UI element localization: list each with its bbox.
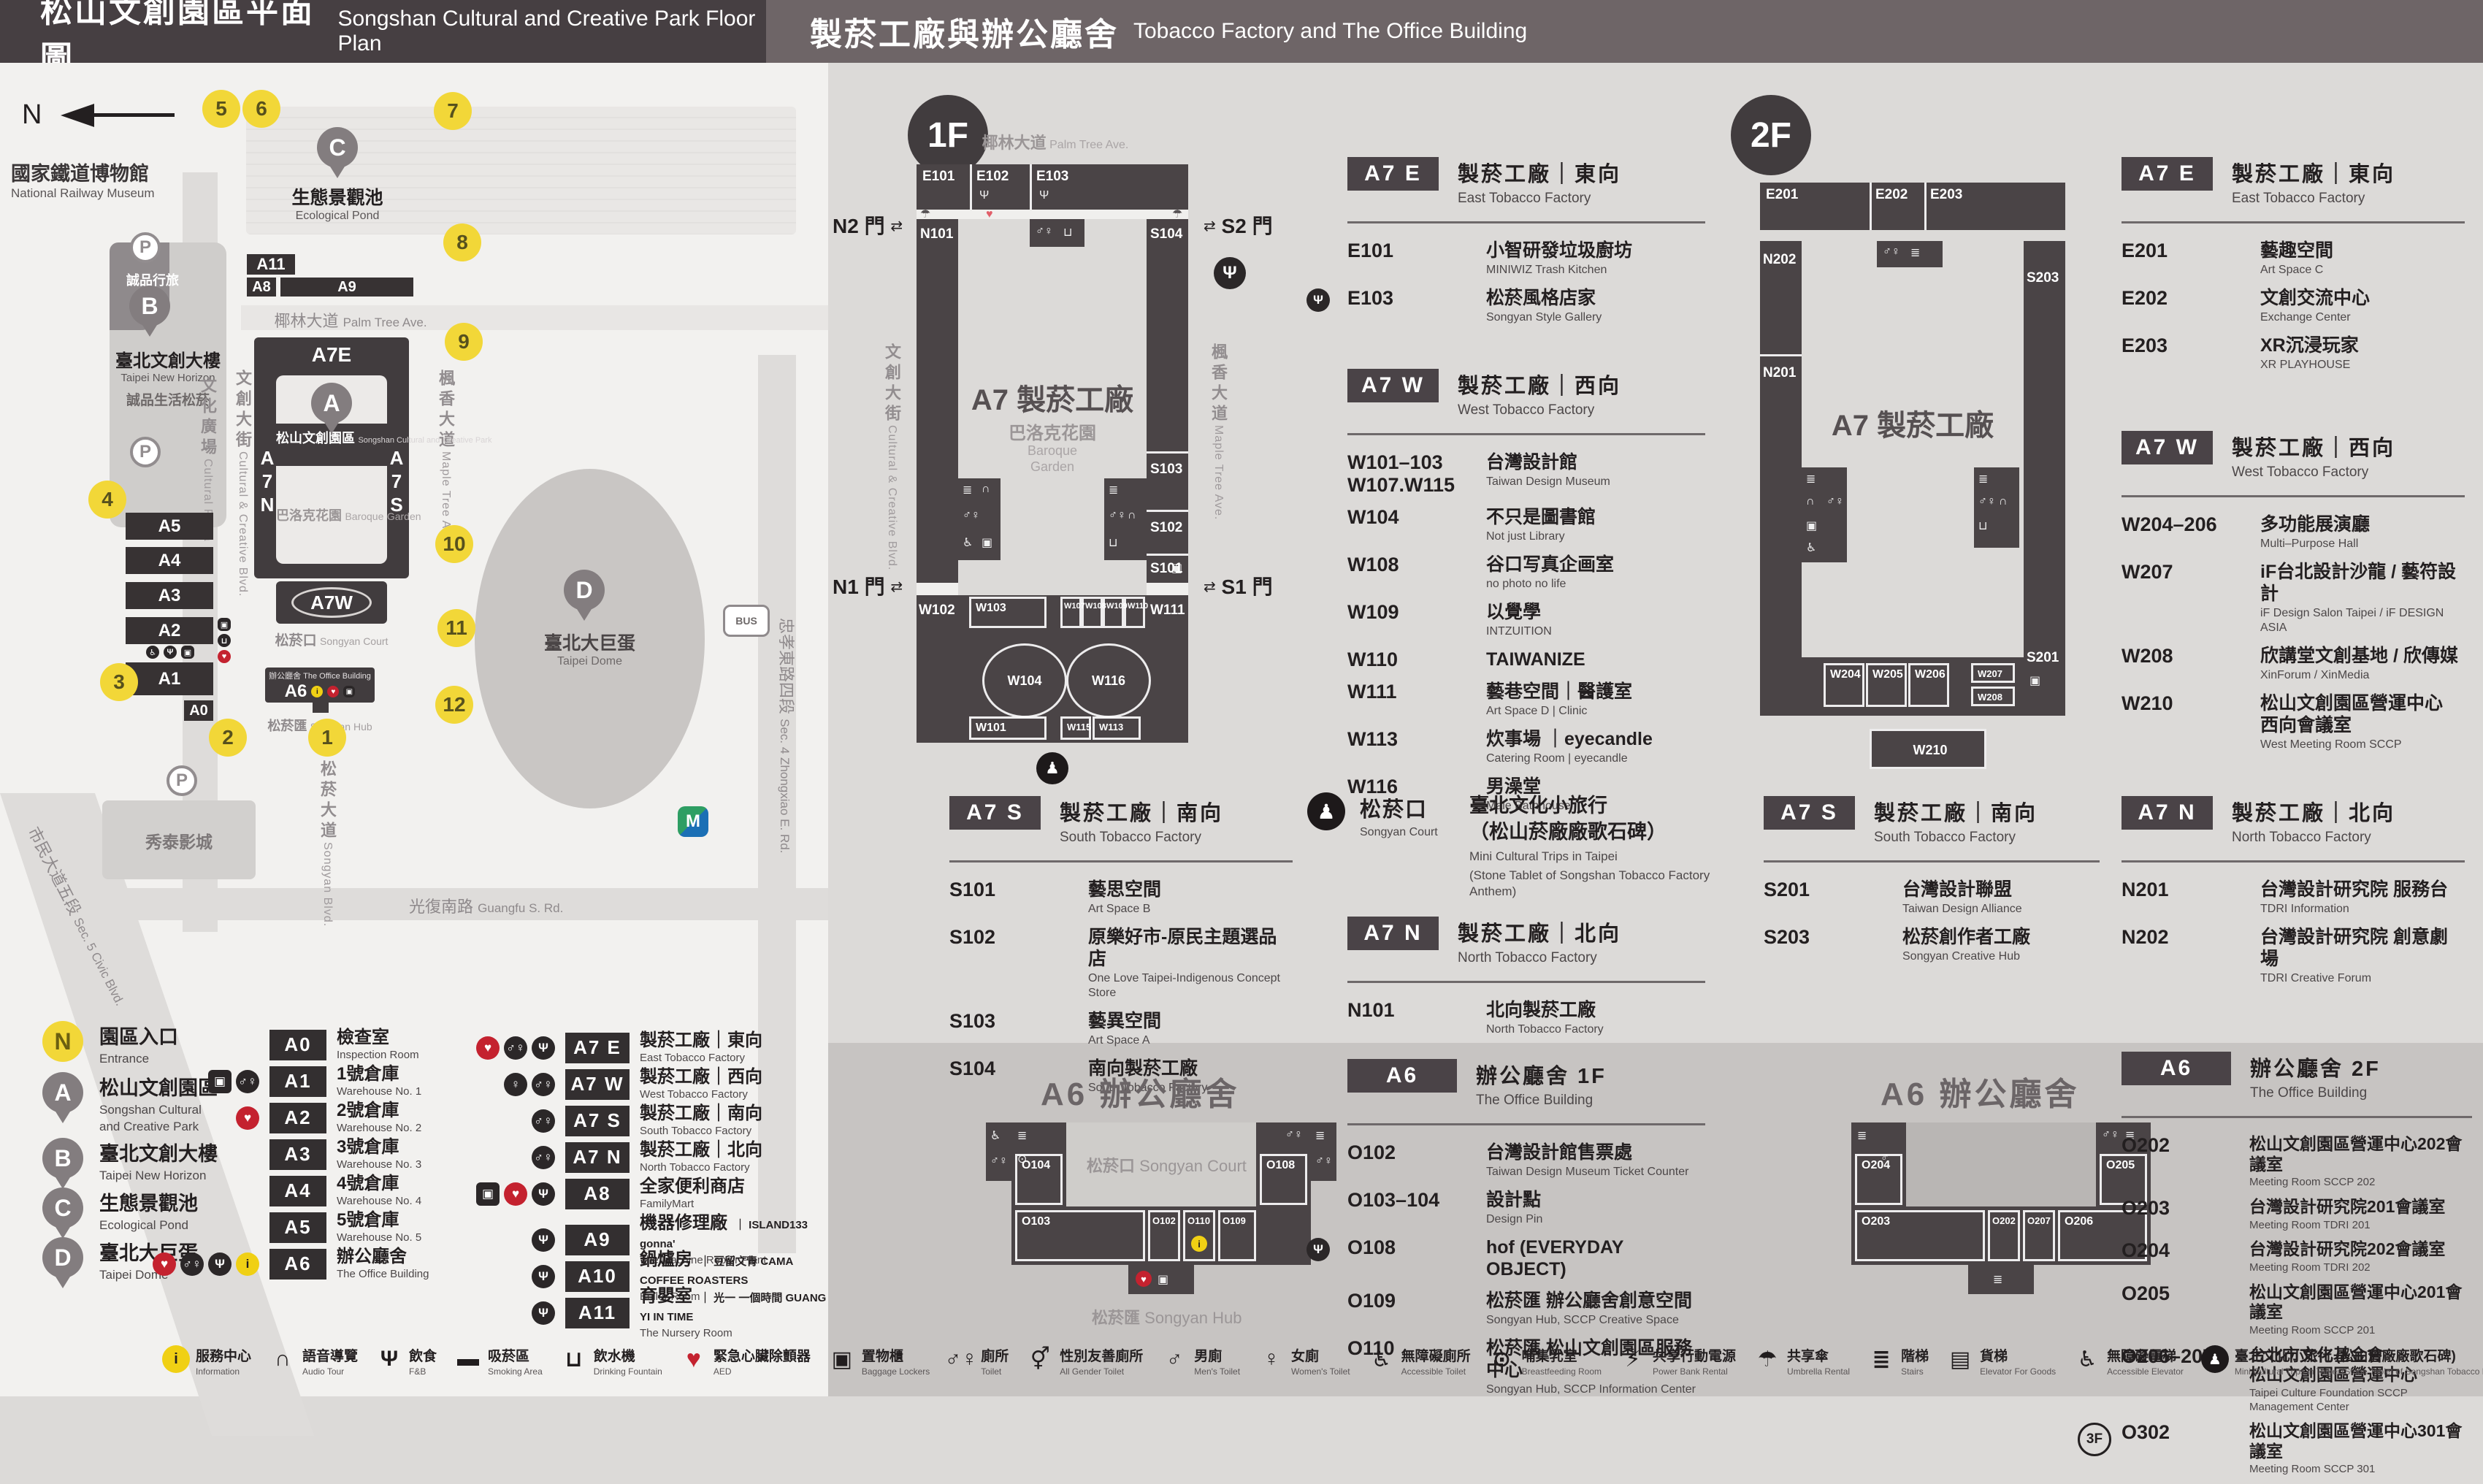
fnb-icon: Ψ bbox=[1306, 1238, 1330, 1261]
entrance-number: 8 bbox=[443, 223, 481, 261]
legend-row-icons: ♥♂♀Ψ bbox=[460, 1036, 555, 1060]
amenity-item: ▤ 貨梯 Elevator For Goods bbox=[1946, 1345, 2056, 1377]
room-w103: W103 bbox=[969, 597, 1047, 628]
room-w115: W115 bbox=[1060, 716, 1091, 740]
legend-row-icons: ▣♂♀ bbox=[157, 1070, 259, 1093]
section-a7s-2f: A7 S 製菸工廠｜南向South Tobacco Factory S201 台… bbox=[1764, 796, 2100, 974]
plan2-amenity-cluster-right: ≣ ♂♀ ∩ ⊔ bbox=[1974, 467, 2019, 548]
palm-ave-label: 椰林大道 Palm Tree Ave. bbox=[241, 308, 460, 332]
room-list-item: W210 松山文創園區營運中心西向會議室West Meeting Room SC… bbox=[2122, 692, 2465, 752]
legend-row-icons: ♥ bbox=[157, 1106, 259, 1130]
room-w110: W110 bbox=[1124, 597, 1145, 628]
legend-zh: 3號倉庫 bbox=[337, 1138, 421, 1157]
allgender-icon: ⚥ bbox=[1026, 1345, 1054, 1373]
toilet-icon: ♂♀ bbox=[532, 1109, 555, 1133]
room-list-item: O202 松山文創園區營運中心202會議室Meeting Room SCCP 2… bbox=[2122, 1134, 2472, 1190]
room-list-item: Ψ E103 松菸風格店家Songyan Style Gallery bbox=[1347, 287, 1705, 325]
room-o207: O207 bbox=[2023, 1210, 2055, 1261]
legend-box: A4 bbox=[269, 1176, 326, 1206]
amenity-en: Stairs bbox=[1901, 1366, 1929, 1377]
legend-box: A1 bbox=[269, 1066, 326, 1097]
amenity-zh: 共享傘 bbox=[1787, 1345, 1850, 1365]
court-label-zh: 松菸口 bbox=[1360, 792, 1455, 823]
building-a2: A2 bbox=[126, 617, 213, 644]
section-a7n-1f: A7 N 製菸工廠｜北向North Tobacco Factory N101 北… bbox=[1347, 917, 1705, 1047]
fnb-icon: Ψ bbox=[532, 1182, 555, 1206]
room-o108: O108 bbox=[1260, 1154, 1307, 1205]
room-list-item: E202 文創交流中心Exchange Center bbox=[2122, 287, 2465, 325]
legend-en: The Nursery Room bbox=[640, 1327, 828, 1339]
amenity-zh: 語音導覽 bbox=[302, 1345, 358, 1365]
a6-floor1-plan: A6 辦公廳舍 ♿ ♂♀ ≣ ♂♀ ≣ ⊙ ♂♀ 松菸口 Songyan Cou… bbox=[971, 1068, 1351, 1331]
railway-museum-label: 國家鐵道博物館 National Railway Museum bbox=[11, 158, 155, 201]
floor2-badge: 2F bbox=[1731, 95, 1811, 175]
powerbank-icon: ⚡ bbox=[1619, 1345, 1647, 1373]
locker-icon: ▣ bbox=[1806, 519, 1817, 533]
amenity-zh: 吸菸區 bbox=[488, 1345, 543, 1365]
amenity-item: Ψ 飲食 F&B bbox=[375, 1345, 437, 1377]
amenity-en: Breastfeeding Room bbox=[1522, 1366, 1602, 1377]
entrance-number: 7 bbox=[434, 92, 472, 130]
amenity-en: AED bbox=[713, 1366, 811, 1377]
locker-icon: ▣ bbox=[208, 1070, 232, 1093]
a6-office-label: 辦公廳舍 The Office Building bbox=[265, 670, 375, 681]
legend-zh: 鍋爐房｜ 豆留文青 CAMA COFFEE ROASTERS bbox=[640, 1250, 828, 1289]
legend-en: Warehouse No. 2 bbox=[337, 1122, 421, 1134]
aed-icon: ♥ bbox=[218, 650, 231, 663]
amenity-en: Smoking Area bbox=[488, 1366, 543, 1377]
audio-icon: ∩ bbox=[1806, 495, 1815, 508]
floor1-plan: E101 E102 Ψ E103 Ψ ♥ ☂ ☂ N101 W102 S104 … bbox=[917, 164, 1188, 757]
showtimes-label: 秀泰影城 bbox=[102, 828, 256, 853]
legend-box: A7 N bbox=[565, 1142, 630, 1173]
compass-arrow-icon bbox=[49, 104, 94, 127]
amenity-item: ♟ 臺北文化小旅行 (松山菸廠廠歌石碑) Mini Cultural Trips… bbox=[2201, 1345, 2483, 1377]
aed-icon: ♥ bbox=[986, 208, 993, 221]
legend-row: ♥ A2 2號倉庫 Warehouse No. 2 bbox=[157, 1101, 421, 1134]
locker-icon: ▣ bbox=[181, 646, 194, 659]
toilet-icon: ♂♀ bbox=[1883, 245, 1900, 259]
room-n201: N201 bbox=[1763, 365, 1796, 381]
amenity-en: Baggage Lockers bbox=[862, 1366, 930, 1377]
building-a1: A1 bbox=[126, 662, 213, 695]
room-w107: W107 bbox=[1060, 597, 1082, 628]
new-horizon-label: 臺北文創大樓 Taipei New Horizon bbox=[88, 346, 248, 384]
aed-icon: ♥ bbox=[504, 1182, 527, 1206]
court-title-en1: Mini Cultural Trips in Taipei bbox=[1469, 849, 1716, 865]
section-a7w-1f: A7 W 製菸工廠｜西向West Tobacco Factory W101–10… bbox=[1347, 369, 1705, 823]
amenity-en: Umbrella Rental bbox=[1787, 1366, 1850, 1377]
room-w205: W205 bbox=[1866, 663, 1907, 707]
mens-icon: ♂ bbox=[1160, 1345, 1188, 1373]
room-o103: O103 bbox=[1015, 1210, 1145, 1261]
breastfeeding-icon: ⊙ bbox=[1488, 1345, 1516, 1373]
amenity-item: ♀ 女廁 Women's Toilet bbox=[1258, 1345, 1350, 1377]
legend-zh: 製菸工廠｜北向 bbox=[640, 1141, 762, 1160]
section-badge: A6 bbox=[2122, 1052, 2231, 1085]
parking-icon: P bbox=[167, 765, 197, 796]
building-a3: A3 bbox=[126, 582, 213, 609]
header-left: 松山文創園區平面圖 Songshan Cultural and Creative… bbox=[0, 0, 766, 63]
room-w113: W113 bbox=[1093, 716, 1141, 740]
eslite-spectrum-label: 誠品生活松菸 bbox=[88, 389, 248, 409]
fnb-icon: Ψ bbox=[208, 1252, 232, 1276]
amenity-en: Toilet bbox=[981, 1366, 1009, 1377]
legend-box: A6 bbox=[269, 1249, 326, 1280]
legend-row: ♂♀ A7 S 製菸工廠｜南向 South Tobacco Factory bbox=[460, 1104, 762, 1137]
songyan-blvd-label: 松菸大道Songyan Blvd. bbox=[315, 760, 339, 927]
parking-icon: P bbox=[130, 437, 161, 467]
stairs-icon: ≣ bbox=[1806, 472, 1816, 486]
accessible-icon: ♿ bbox=[1368, 1345, 1396, 1373]
amenity-en: F&B bbox=[409, 1366, 437, 1377]
aed-icon: ♥ bbox=[1136, 1271, 1152, 1287]
showtimes-building: 秀泰影城 bbox=[102, 800, 256, 879]
maple-ave-label: 楓香大道Maple Tree Ave. bbox=[434, 370, 457, 546]
pond-label: 生態景觀池 Ecological Pond bbox=[246, 183, 429, 223]
room-list-item: S101 藝思空間Art Space B bbox=[949, 879, 1293, 917]
building-a9: A9 bbox=[280, 278, 413, 297]
room-list-item: O109 松菸匯 辦公廳舍創意空間Songyan Hub, SCCP Creat… bbox=[1347, 1290, 1705, 1328]
entrance-number: 10 bbox=[435, 525, 473, 563]
amenity-en: Mini Cultural Trips in Taipei (Stone Tab… bbox=[2235, 1366, 2483, 1377]
section-badge: A7 S bbox=[949, 796, 1041, 830]
legend-pin-icon: A bbox=[42, 1072, 83, 1113]
legend-box: A0 bbox=[269, 1030, 326, 1060]
amenity-zh: 飲食 bbox=[409, 1345, 437, 1365]
section-badge: A7 N bbox=[1347, 917, 1439, 950]
legend-row: ♂♀ A7 N 製菸工廠｜北向 North Tobacco Factory bbox=[460, 1141, 762, 1174]
building-a5: A5 bbox=[126, 513, 213, 540]
room-w210: W210 bbox=[1870, 729, 1986, 769]
plan1-ccblvd-label: 文創大街Cultural & Creative Blvd. bbox=[880, 343, 903, 570]
entrance-number: 11 bbox=[437, 609, 475, 647]
room-w104: W104 bbox=[982, 643, 1067, 718]
legend-row: A3 3號倉庫 Warehouse No. 3 bbox=[157, 1138, 421, 1171]
legend-box: A8 bbox=[565, 1179, 630, 1209]
locker-icon: ▣ bbox=[982, 535, 992, 550]
fnb-icon: Ψ bbox=[1039, 189, 1049, 202]
songyan-court-map-label: 松菸口 Songyan Court bbox=[254, 630, 409, 649]
section-badge: A7 S bbox=[1764, 796, 1855, 830]
room-list-item: 3F O302 松山文創園區營運中心301會議室Meeting Room SCC… bbox=[2122, 1421, 2472, 1477]
info-icon: i bbox=[311, 686, 323, 697]
pin-c: C bbox=[317, 127, 358, 168]
amenity-en: Women's Toilet bbox=[1291, 1366, 1350, 1377]
room-w206: W206 bbox=[1908, 663, 1949, 707]
room-o102: O102 bbox=[1148, 1210, 1180, 1261]
plan2-left-wing: N202 N201 bbox=[1760, 241, 1802, 716]
room-list-item: W208 欣講堂文創基地 / 欣傳媒XinForum / XinMedia bbox=[2122, 645, 2465, 683]
dome-label: 臺北大巨蛋 Taipei Dome bbox=[475, 629, 705, 668]
room-list-item: W204–206 多功能展演廳Multi–Purpose Hall bbox=[2122, 513, 2465, 551]
audio-icon: ∩ bbox=[269, 1345, 296, 1373]
toilet-icon: ♂♀ bbox=[1109, 509, 1126, 522]
aed-icon: ♥ bbox=[153, 1252, 176, 1276]
plan1-baroque-en2: Garden bbox=[917, 459, 1188, 475]
amenity-zh: 貨梯 bbox=[1980, 1345, 2056, 1365]
room-w208: W208 bbox=[1971, 686, 2015, 706]
entrance-number: 4 bbox=[88, 481, 126, 519]
fnb-icon: Ψ bbox=[375, 1345, 403, 1373]
accessible-icon: ♿ bbox=[1806, 540, 1816, 555]
plan1-north-connector: ♂♀ ⊔ bbox=[1030, 219, 1084, 247]
room-w109: W109 bbox=[1103, 597, 1124, 628]
legend-box: A7 S bbox=[565, 1106, 630, 1136]
room-list-item: W101–103W107.W115 台灣設計館Taiwan Design Mus… bbox=[1347, 451, 1705, 497]
amenity-en: Elevator For Goods bbox=[1980, 1366, 2056, 1377]
legend-en: West Tobacco Factory bbox=[640, 1088, 762, 1101]
stairs-icon: ≣ bbox=[1993, 1272, 2002, 1287]
amenity-item: ⊙ 哺集乳室 Breastfeeding Room bbox=[1488, 1345, 1602, 1377]
nursing-icon: ♀ bbox=[504, 1073, 527, 1096]
fountain-icon: ⊔ bbox=[1063, 225, 1072, 240]
amenity-item: ∩ 語音導覽 Audio Tour bbox=[269, 1345, 358, 1377]
plan1-baroque-zh: 巴洛克花園 bbox=[917, 418, 1188, 444]
pin-b: B bbox=[129, 286, 170, 326]
toilet-icon: ♂♀ bbox=[180, 1252, 204, 1276]
room-o110: O110 i bbox=[1183, 1210, 1215, 1261]
court-icon: ♟ bbox=[2201, 1345, 2229, 1373]
plan1-palm-label: 椰林大道 Palm Tree Ave. bbox=[942, 130, 1168, 153]
accesselev-icon: ♿ bbox=[2073, 1345, 2101, 1373]
section-badge: A6 bbox=[1347, 1059, 1457, 1093]
legend-en: Warehouse No. 1 bbox=[337, 1085, 421, 1098]
a7e-map-label: A7E bbox=[254, 343, 409, 367]
room-list-item: W108 谷口写真企画室no photo no life bbox=[1347, 554, 1705, 592]
room-o104: O104 bbox=[1015, 1154, 1063, 1205]
plan2-right-wing: S203 S201 ▣ bbox=[2024, 241, 2065, 716]
room-w111: W111 bbox=[1150, 603, 1185, 619]
amenity-zh: 服務中心 bbox=[196, 1345, 251, 1365]
info-icon: i bbox=[162, 1345, 190, 1373]
baroque-garden-label: 巴洛克花園 Baroque Garden bbox=[276, 505, 387, 524]
room-list-item: S201 台灣設計聯盟Taiwan Design Alliance bbox=[1764, 879, 2100, 917]
legend-zh: 製菸工廠｜西向 bbox=[640, 1068, 762, 1087]
amenity-zh: 緊急心臟除顫器 bbox=[713, 1345, 811, 1365]
stairs-icon: ≣ bbox=[1857, 1128, 1867, 1143]
court-title-en2: (Stone Tablet of Songshan Tobacco Factor… bbox=[1469, 868, 1716, 900]
room-s201: S201 bbox=[2027, 650, 2059, 666]
building-a6-map: 辦公廳舍 The Office Building A6 i ♥ ▣ bbox=[265, 668, 375, 703]
a2-side-icons: ▣ ⊔ ♥ bbox=[218, 618, 231, 663]
room-list-item: O205 松山文創園區營運中心201會議室Meeting Room SCCP 2… bbox=[2122, 1282, 2472, 1338]
gate-n1: N1 門 ⇄ bbox=[833, 571, 903, 600]
legend-row: A5 5號倉庫 Warehouse No. 5 bbox=[157, 1211, 421, 1244]
legend-zh: 機器修理廠｜ ISLAND133 gonna' bbox=[640, 1214, 828, 1252]
room-list-item: S102 原樂好市-原民主題選品店One Love Taipei-Indigen… bbox=[949, 926, 1293, 1001]
park-map-panel: N 市民大道五段 Sec. 5 Civic Blvd. 菸廠路 Yanchang… bbox=[0, 63, 828, 1396]
locker-icon: ▣ bbox=[1171, 561, 1182, 575]
amenity-zh: 女廁 bbox=[1291, 1345, 1350, 1365]
amenity-en: Audio Tour bbox=[302, 1366, 358, 1377]
section-a7n-2f: A7 N 製菸工廠｜北向North Tobacco Factory N201 台… bbox=[2122, 796, 2465, 995]
room-e201: E201 bbox=[1766, 187, 1798, 203]
room-s203: S203 bbox=[2027, 270, 2059, 286]
room-e203: E203 bbox=[1930, 187, 1962, 203]
legend-row: A0 檢查室 Inspection Room bbox=[157, 1028, 419, 1061]
legend-zh: 辦公廳舍 bbox=[337, 1247, 429, 1266]
locker-icon: ▣ bbox=[343, 686, 355, 697]
info-icon: i bbox=[1191, 1236, 1207, 1252]
legend-row-icons: ♀♂♀ bbox=[460, 1073, 555, 1096]
amenity-en: All Gender Toilet bbox=[1060, 1366, 1143, 1377]
amenity-zh: 性別友善廁所 bbox=[1060, 1345, 1143, 1365]
fountain-icon: ⊔ bbox=[218, 634, 231, 647]
a6-map-label: A6 bbox=[285, 681, 307, 702]
room-e103: E103 bbox=[1036, 169, 1068, 185]
amenity-zh: 置物櫃 bbox=[862, 1345, 930, 1365]
section-title-en: Tobacco Factory and The Office Building bbox=[1133, 19, 1527, 44]
section-a7e-1f: A7 E 製菸工廠｜東向East Tobacco Factory E101 小智… bbox=[1347, 157, 1705, 334]
room-list-item: Ψ O108 hof (EVERYDAY OBJECT) bbox=[1347, 1236, 1705, 1280]
amenity-item: ≣ 階梯 Stairs bbox=[1867, 1345, 1929, 1377]
page-title-en: Songshan Cultural and Creative Park Floo… bbox=[337, 7, 766, 56]
toilet-icon: ♂♀ bbox=[990, 1155, 1008, 1168]
bus-stop-icon: BUS bbox=[723, 605, 770, 637]
legend-en: Warehouse No. 5 bbox=[337, 1231, 421, 1244]
legend-en: Warehouse No. 4 bbox=[337, 1195, 421, 1207]
amenity-item: ⚡ 共享行動電源 Power Bank Rental bbox=[1619, 1345, 1736, 1377]
songyan-court-icon: ♟ bbox=[1036, 752, 1068, 784]
legend-zh: 1號倉庫 bbox=[337, 1065, 421, 1084]
building-a11: A11 bbox=[247, 254, 295, 275]
legend-row-icons: ♂♀ bbox=[460, 1146, 555, 1169]
room-n101: N101 bbox=[920, 226, 953, 242]
amenity-zh: 飲水機 bbox=[594, 1345, 662, 1365]
amenity-zh: 臺北文化小旅行 (松山菸廠廠歌石碑) bbox=[2235, 1345, 2483, 1365]
room-list-item: W113 炊事場 ｜eyecandleCatering Room | eyeca… bbox=[1347, 728, 1705, 766]
amenity-zh: 男廁 bbox=[1194, 1345, 1240, 1365]
fnb-icon: Ψ bbox=[164, 646, 177, 659]
amenity-en: Accessible Toilet bbox=[1401, 1366, 1471, 1377]
smoking-icon: ▬ bbox=[454, 1345, 482, 1373]
legend-zh: 全家便利商店 bbox=[640, 1177, 745, 1196]
legend-zh: 5號倉庫 bbox=[337, 1211, 421, 1230]
a6-courtyard: 松菸口 Songyan Court bbox=[1066, 1122, 1256, 1206]
stairs-icon: ≣ bbox=[1315, 1128, 1325, 1143]
accessible-icon: ♿ bbox=[990, 1128, 1001, 1143]
room-list-item: N201 台灣設計研究院 服務台TDRI Information bbox=[2122, 879, 2465, 917]
amenity-item: ▬ 吸菸區 Smoking Area bbox=[454, 1345, 543, 1377]
legend-box: A11 bbox=[565, 1298, 630, 1328]
legend-row-icons: Ψ bbox=[460, 1301, 555, 1325]
plan2-amenity-cluster-left: ≣ ∩ ♂♀ ▣ ♿ bbox=[1802, 467, 1847, 562]
amenity-item: ▣ 置物櫃 Baggage Lockers bbox=[828, 1345, 930, 1377]
building-a4: A4 bbox=[126, 547, 213, 574]
plan1-amenity-cluster-left: ≣ ∩ ♂♀ ♿ ▣ bbox=[958, 478, 1001, 560]
a6-side-r: ≣ ♂♀ bbox=[1311, 1122, 1336, 1181]
plan2-north-connector: ♂♀ ≣ bbox=[1877, 241, 1943, 267]
plan1-west-wing: W103 W107 W108 W109 W110 W104 W116 W101 … bbox=[958, 595, 1147, 743]
building-a7: A7E 巴洛克花園 Baroque Garden 松山文創園區 Songshan… bbox=[254, 337, 409, 578]
aed-icon: ♥ bbox=[476, 1036, 500, 1060]
toilet-icon: ♂♀ bbox=[1978, 495, 1996, 508]
amenity-item: ♥ 緊急心臟除顫器 AED bbox=[680, 1345, 811, 1377]
room-list-item: W104 不只是圖書館Not just Library bbox=[1347, 506, 1705, 544]
amenity-en: Accessible Elevator bbox=[2107, 1366, 2184, 1377]
legend-row-icons: ▣♥Ψ bbox=[460, 1182, 555, 1206]
room-list-item: W109 以覺學INTZUITION bbox=[1347, 601, 1705, 639]
legend-row: A4 4號倉庫 Warehouse No. 4 bbox=[157, 1174, 421, 1207]
room-list-item: O203 台灣設計研究院201會議室Meeting Room TDRI 201 bbox=[2122, 1197, 2472, 1232]
legend-box: A3 bbox=[269, 1139, 326, 1170]
court-title-zh2: （松山菸廠廠歌石碑） bbox=[1469, 819, 1716, 845]
womens-icon: ♀ bbox=[1258, 1345, 1285, 1373]
goods-icon: ▤ bbox=[1946, 1345, 1974, 1373]
room-list-item: W110 TAIWANIZE bbox=[1347, 649, 1705, 671]
amenity-en: Men's Toilet bbox=[1194, 1366, 1240, 1377]
toilet-icon: ♂♀ bbox=[1285, 1128, 1303, 1141]
amenity-en: Power Bank Rental bbox=[1653, 1366, 1736, 1377]
legend-zh: 育嬰室｜ 光一 一個時間 GUANG YI IN TIME bbox=[640, 1287, 828, 1326]
section-a7w-2f: A7 W 製菸工廠｜西向West Tobacco Factory W204–20… bbox=[2122, 431, 2465, 762]
legend-zh: 製菸工廠｜南向 bbox=[640, 1104, 762, 1123]
stairs-icon: ≣ bbox=[963, 483, 972, 497]
legend-zh: 2號倉庫 bbox=[337, 1101, 421, 1120]
amenity-item: ♿ 無障礙電梯 Accessible Elevator bbox=[2073, 1345, 2184, 1377]
room-e102: E102 bbox=[976, 169, 1009, 185]
legend-en: East Tobacco Factory bbox=[640, 1052, 762, 1064]
audio-icon: ∩ bbox=[982, 483, 990, 496]
room-list-item: E201 藝趣空間Art Space C bbox=[2122, 240, 2465, 278]
plan2-center-label: A7 製菸工廠 bbox=[1760, 402, 2065, 444]
fnb-icon: Ψ bbox=[979, 189, 989, 202]
room-o203: O203 bbox=[1855, 1210, 1985, 1261]
entrance-number: 12 bbox=[435, 686, 473, 724]
a6-stem-1f: ♥ ▣ bbox=[1128, 1265, 1194, 1294]
amenity-zh: 廁所 bbox=[981, 1345, 1009, 1365]
stairs-icon: ≣ bbox=[1910, 245, 1920, 260]
room-w101: W101 bbox=[969, 716, 1047, 740]
entrance-number: 2 bbox=[209, 719, 247, 757]
a6-hub-label: 松菸匯 Songyan Hub bbox=[1092, 1305, 1241, 1328]
room-list-item: S103 藝異空間Art Space A bbox=[949, 1010, 1293, 1048]
toilet-icon: ♂♀ bbox=[504, 1036, 527, 1060]
section-a6-2f: A6 辦公廳舍 2FThe Office Building O202 松山文創園… bbox=[2122, 1052, 2472, 1484]
legend-row: ♥♂♀Ψi A6 辦公廳舍 The Office Building bbox=[157, 1247, 429, 1280]
plan1-maple-label: 楓香大道Maple Tree Ave. bbox=[1206, 343, 1230, 520]
toilet-icon: ♂♀ bbox=[1036, 225, 1053, 238]
north-label: N bbox=[22, 99, 42, 131]
metro-icon: M bbox=[678, 806, 708, 837]
toilet-icon: ♂♀ bbox=[532, 1146, 555, 1169]
legend-row-icons: Ψ bbox=[460, 1228, 555, 1252]
pin-d: D bbox=[564, 570, 605, 611]
legend-box: A7 W bbox=[565, 1069, 630, 1100]
a6-stem bbox=[313, 703, 329, 713]
locker-icon: ▣ bbox=[218, 618, 231, 631]
room-s102: S102 bbox=[1150, 520, 1182, 536]
legend-row: Ψ A11 育嬰室｜ 光一 一個時間 GUANG YI IN TIME The … bbox=[460, 1287, 828, 1339]
fnb-icon: Ψ bbox=[532, 1036, 555, 1060]
toilet-icon: ♂♀ bbox=[1315, 1155, 1333, 1168]
room-list-item: W207 iF台北設計沙龍 / 藝符設計iF Design Salon Taip… bbox=[2122, 561, 2465, 635]
amenity-item: ⊔ 飲水機 Drinking Fountain bbox=[560, 1345, 662, 1377]
room-list-item: W111 藝巷空間｜醫護室Art Space D | Clinic bbox=[1347, 681, 1705, 719]
section-title-zh: 製菸工廠與辦公廳舍 bbox=[810, 8, 1119, 55]
plan1-east-right-wing: S104 S103 S102 S101 ▣ W111 bbox=[1147, 219, 1188, 743]
aed-icon: ♥ bbox=[236, 1106, 259, 1130]
cc-blvd-label: 文創大街Cultural & Creative Blvd. bbox=[231, 370, 254, 597]
audio-icon: ∩ bbox=[1128, 509, 1136, 522]
audio-icon: ∩ bbox=[1999, 495, 2008, 508]
legend-box: A2 bbox=[269, 1103, 326, 1133]
legend-pin-icon: N bbox=[42, 1021, 83, 1062]
fnb-icon: Ψ bbox=[532, 1228, 555, 1252]
legend-row: ♀♂♀ A7 W 製菸工廠｜西向 West Tobacco Factory bbox=[460, 1068, 762, 1101]
amenity-legend: i 服務中心 Information ∩ 語音導覽 Audio Tour Ψ 飲… bbox=[162, 1345, 2483, 1377]
